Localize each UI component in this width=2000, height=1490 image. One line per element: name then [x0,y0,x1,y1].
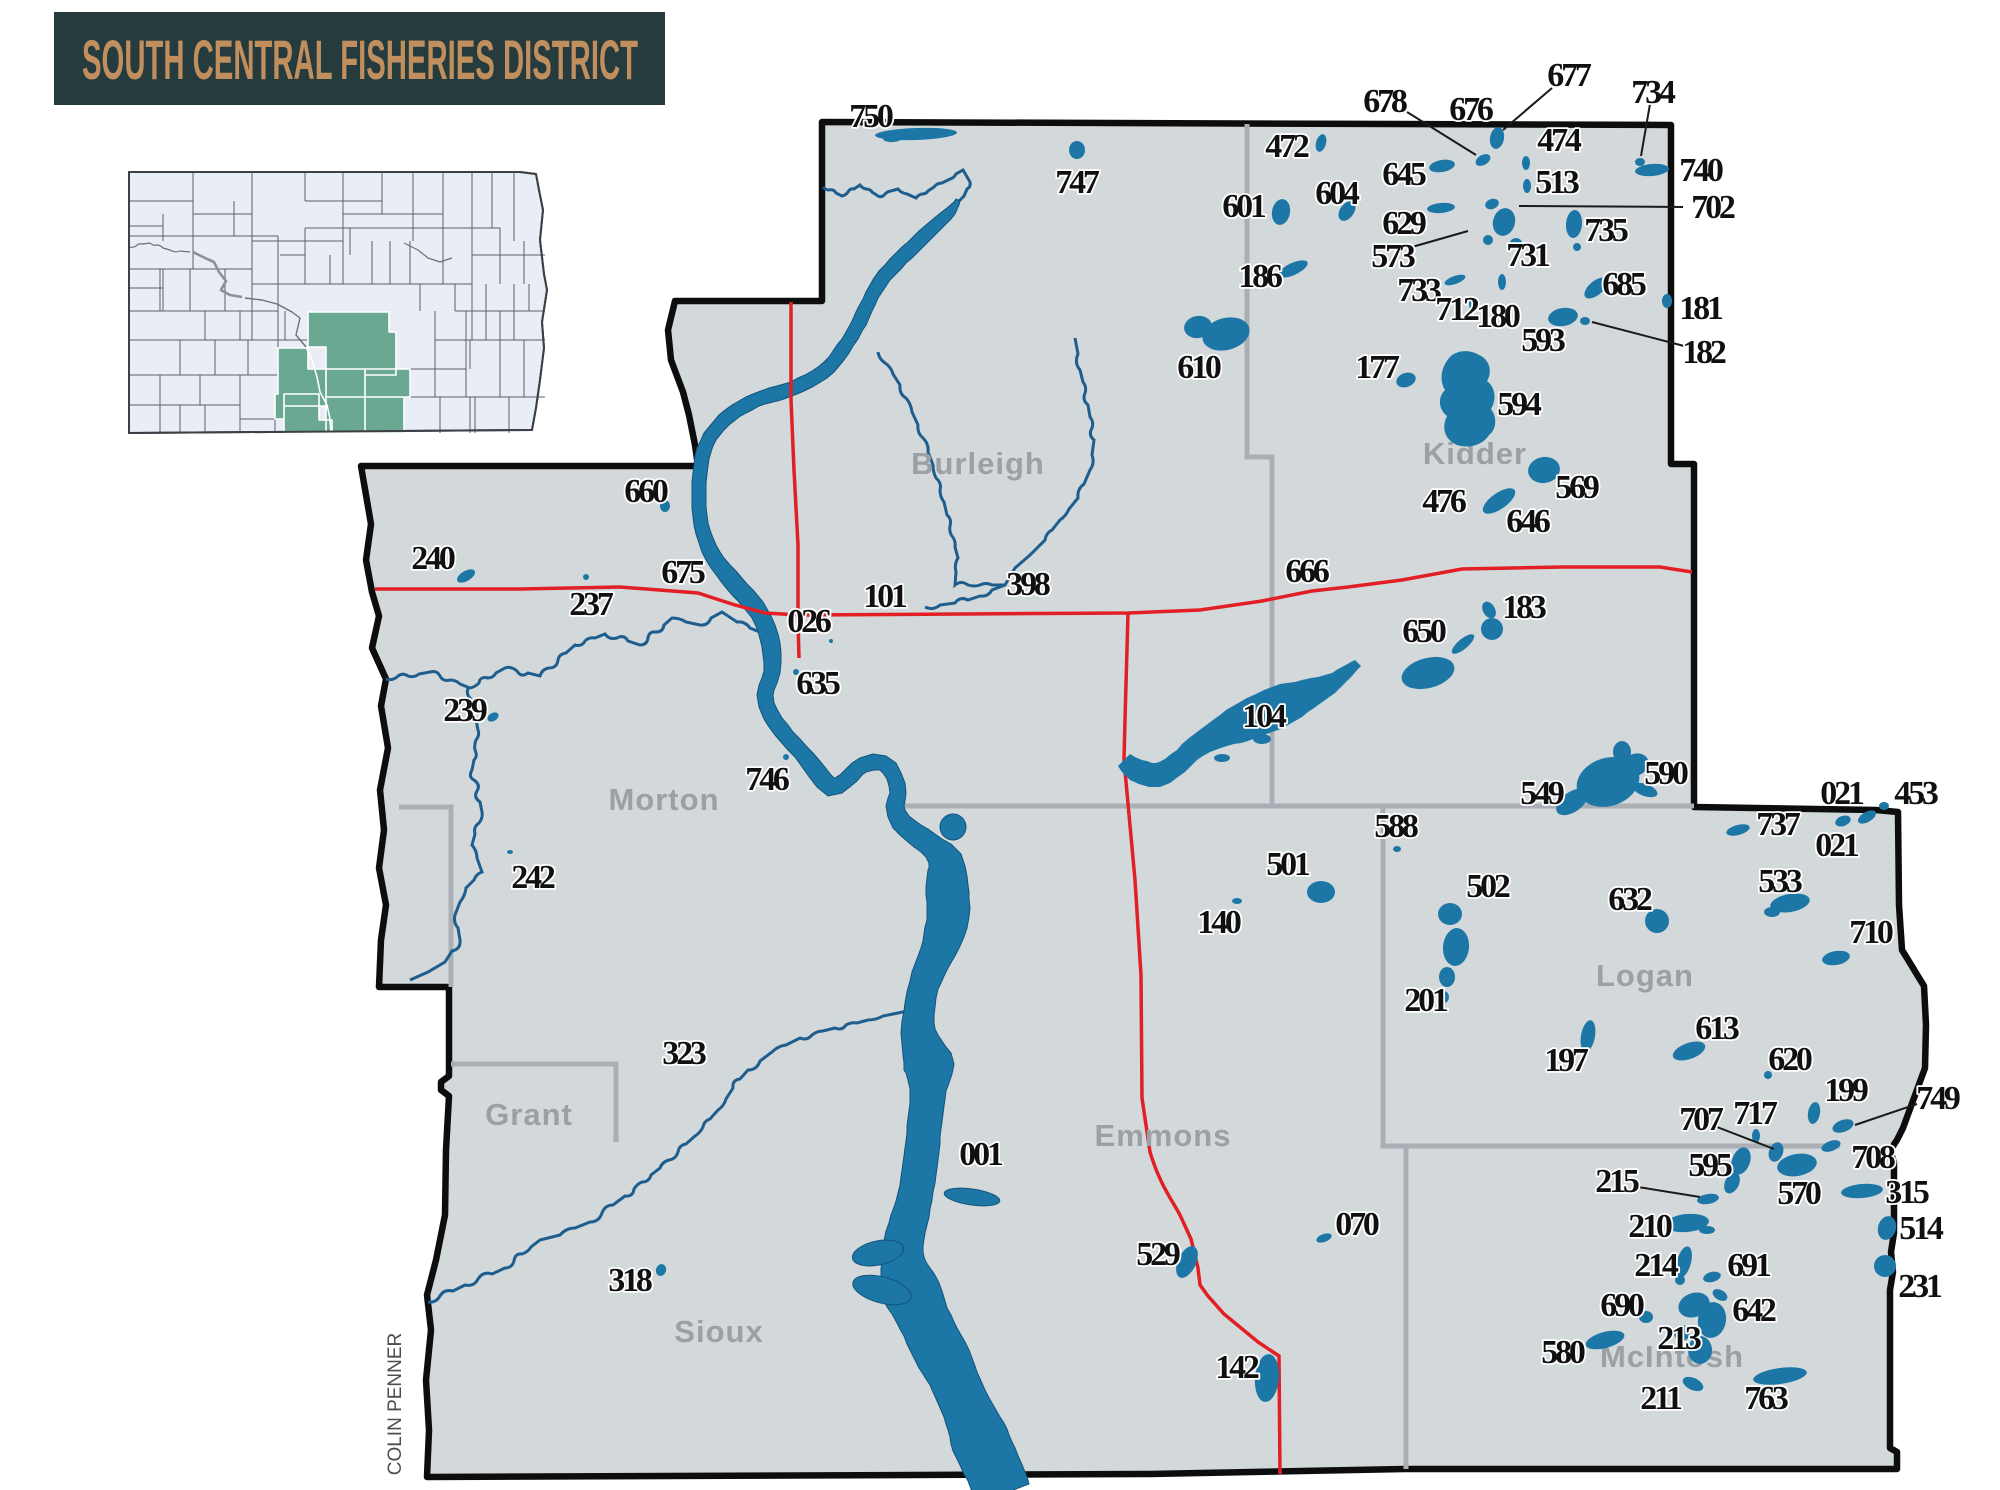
svg-text:570: 570 [1777,1175,1821,1212]
svg-text:746: 746 [745,761,789,798]
svg-text:474: 474 [1537,122,1582,159]
svg-text:533: 533 [1758,863,1802,900]
svg-text:197: 197 [1544,1042,1589,1079]
svg-text:Grant: Grant [485,1097,573,1132]
svg-text:502: 502 [1466,868,1510,905]
svg-text:186: 186 [1238,258,1282,295]
svg-text:601: 601 [1222,188,1266,225]
svg-text:610: 610 [1177,349,1221,386]
svg-text:635: 635 [796,665,840,702]
svg-text:604: 604 [1315,175,1360,212]
svg-text:501: 501 [1266,846,1310,883]
svg-text:691: 691 [1727,1247,1771,1284]
svg-text:650: 650 [1402,613,1446,650]
svg-text:180: 180 [1476,298,1520,335]
svg-text:593: 593 [1521,322,1565,359]
svg-text:476: 476 [1422,483,1466,520]
svg-text:070: 070 [1335,1206,1379,1243]
svg-text:629: 629 [1382,205,1426,242]
svg-text:315: 315 [1885,1174,1929,1211]
svg-text:001: 001 [959,1136,1003,1173]
svg-text:660: 660 [624,473,668,510]
svg-text:213: 213 [1657,1320,1701,1357]
svg-text:549: 549 [1520,775,1564,812]
svg-text:182: 182 [1682,334,1726,371]
svg-text:211: 211 [1640,1380,1682,1417]
svg-text:707: 707 [1679,1101,1724,1138]
svg-text:237: 237 [569,586,614,623]
svg-text:Emmons: Emmons [1095,1118,1232,1153]
svg-text:731: 731 [1506,237,1550,274]
svg-text:140: 140 [1197,904,1241,941]
svg-text:740: 740 [1679,152,1723,189]
svg-text:104: 104 [1242,698,1287,735]
svg-text:594: 594 [1497,386,1542,423]
svg-text:645: 645 [1382,156,1426,193]
svg-text:735: 735 [1584,212,1628,249]
svg-text:472: 472 [1265,128,1309,165]
svg-text:181: 181 [1679,290,1723,327]
svg-text:SOUTH CENTRAL FISHERIES DISTRI: SOUTH CENTRAL FISHERIES DISTRICT [82,28,638,91]
svg-text:708: 708 [1851,1139,1895,1176]
svg-text:101: 101 [863,578,907,615]
svg-text:620: 620 [1768,1041,1812,1078]
svg-text:580: 580 [1541,1334,1585,1371]
svg-text:201: 201 [1404,982,1448,1019]
svg-text:702: 702 [1691,189,1735,226]
svg-text:210: 210 [1628,1208,1672,1245]
svg-text:749: 749 [1916,1080,1960,1117]
svg-text:675: 675 [661,554,705,591]
svg-text:142: 142 [1215,1349,1259,1386]
svg-text:613: 613 [1695,1010,1739,1047]
svg-text:398: 398 [1006,566,1050,603]
svg-text:323: 323 [662,1035,706,1072]
svg-text:712: 712 [1435,291,1479,328]
svg-text:595: 595 [1688,1147,1732,1184]
svg-text:642: 642 [1732,1292,1776,1329]
svg-text:590: 590 [1644,755,1688,792]
svg-text:678: 678 [1363,83,1407,120]
svg-text:318: 318 [608,1262,652,1299]
svg-text:COLIN PENNER: COLIN PENNER [385,1333,406,1476]
svg-text:529: 529 [1136,1236,1180,1273]
svg-text:710: 710 [1849,914,1893,951]
svg-text:750: 750 [849,98,893,135]
svg-text:021: 021 [1820,775,1864,812]
svg-text:231: 231 [1898,1268,1942,1305]
svg-text:026: 026 [787,603,831,640]
svg-text:242: 242 [511,859,555,896]
svg-text:Morton: Morton [608,782,719,817]
svg-text:Burleigh: Burleigh [911,446,1045,481]
svg-text:215: 215 [1595,1163,1639,1200]
svg-text:646: 646 [1506,503,1550,540]
svg-text:573: 573 [1371,238,1415,275]
svg-text:514: 514 [1899,1210,1944,1247]
svg-text:685: 685 [1602,266,1646,303]
svg-text:240: 240 [411,540,455,577]
svg-text:569: 569 [1555,469,1599,506]
svg-text:588: 588 [1374,808,1418,845]
svg-text:021: 021 [1815,827,1859,864]
svg-text:239: 239 [443,692,487,729]
svg-text:453: 453 [1894,775,1938,812]
svg-text:690: 690 [1600,1287,1644,1324]
svg-text:763: 763 [1744,1380,1788,1417]
svg-text:737: 737 [1756,806,1801,843]
svg-text:747: 747 [1055,164,1100,201]
svg-text:183: 183 [1502,589,1546,626]
svg-text:199: 199 [1824,1072,1868,1109]
svg-text:676: 676 [1449,91,1493,128]
svg-text:Logan: Logan [1596,958,1694,993]
svg-text:513: 513 [1535,164,1579,201]
svg-text:666: 666 [1285,553,1329,590]
svg-text:717: 717 [1733,1095,1778,1132]
svg-text:177: 177 [1355,349,1400,386]
svg-text:677: 677 [1547,57,1592,94]
svg-text:632: 632 [1608,881,1652,918]
svg-text:214: 214 [1634,1247,1679,1284]
svg-text:Sioux: Sioux [674,1314,763,1349]
svg-text:734: 734 [1631,74,1676,111]
